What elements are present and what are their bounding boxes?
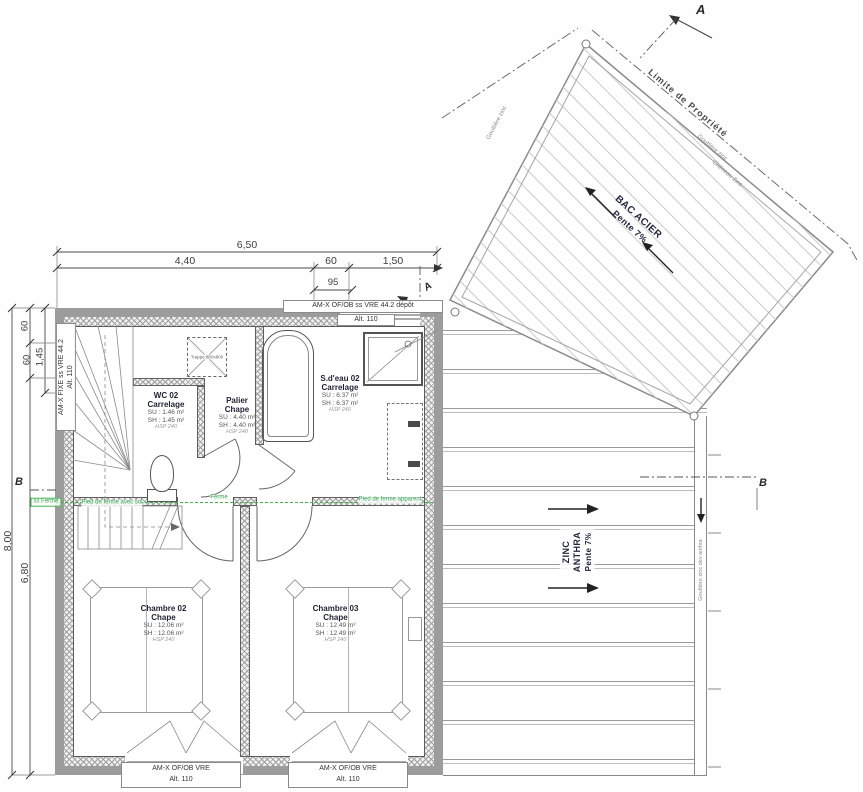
staircase — [73, 326, 182, 549]
window-bottom1-label: AM-X OF/OB VRE Alt. 110 — [121, 762, 241, 788]
zinc-slope: Pente 7% — [583, 532, 593, 572]
window-top-label: AM-X OF/OB ss VRE 44.2 dépôt — [283, 300, 443, 313]
ferme-label-mid2: Ferme — [210, 495, 227, 502]
room-name: Chambre 03 — [293, 604, 378, 613]
room-finish: Chape — [121, 613, 206, 622]
dim-arrow-150 — [434, 264, 443, 272]
window-b1-l1: AM-X OF/OB VRE — [122, 763, 240, 774]
room-su: SU : 12.49 m² — [293, 622, 378, 629]
section-b-right: B — [759, 477, 767, 489]
room-sh: SH : 12.06 m² — [121, 630, 206, 637]
room-finish: Carrelage — [126, 400, 206, 409]
room-su: SU : 6.37 m² — [299, 392, 381, 399]
room-su: SU : 4.40 m² — [197, 414, 277, 421]
room-palier: Palier Chape SU : 4.40 m² SH : 4.40 m² H… — [197, 396, 277, 436]
zinc-name-2: ANTHRA — [572, 532, 583, 572]
zinc-name-1: ZINC — [561, 532, 572, 572]
section-a-top: A — [696, 2, 705, 17]
room-chambre02: Chambre 02 Chape SU : 12.06 m² SH : 12.0… — [121, 604, 206, 644]
room-name: Chambre 02 — [121, 604, 206, 613]
room-hsp: HSP 240 — [126, 424, 206, 430]
window-left-l1: AM-X FIXE ss VRE 44.2 — [57, 324, 66, 430]
door-swings — [178, 439, 312, 561]
room-name: S.d'eau 02 — [299, 374, 381, 383]
room-sh: SH : 1.45 m² — [126, 417, 206, 424]
window-top-alt: Alt. 110 — [337, 314, 395, 326]
zinc-gutter-label: Gouttière zinc dev anthra — [698, 539, 704, 600]
zinc-label: ZINC ANTHRA Pente 7% — [560, 529, 595, 575]
room-name: Palier — [197, 396, 277, 405]
room-finish: Chape — [293, 613, 378, 622]
room-hsp: HSP 240 — [121, 637, 206, 643]
window-left-label: AM-X FIXE ss VRE 44.2 Alt. 110 — [56, 323, 76, 431]
room-name: WC 02 — [126, 391, 206, 400]
floor-plan-canvas: 6,50 4,40 60 1,50 95 8,00 60 60 1,45 6,8… — [0, 0, 863, 792]
room-su: SU : 12.06 m² — [121, 622, 206, 629]
room-finish: Carrelage — [299, 383, 381, 392]
ferme-label-right: Pied de ferme apparent — [359, 497, 422, 504]
ferme-label-mid1: Pied de ferme avec sol — [81, 500, 142, 507]
room-hsp: HSP 240 — [293, 637, 378, 643]
room-hsp: HSP 240 — [299, 407, 381, 413]
ferme-label-left: ss Ferme — [30, 498, 61, 507]
room-hsp: HSP 240 — [197, 429, 277, 435]
room-sh: SH : 6.37 m² — [299, 400, 381, 407]
window-left-l2: Alt. 110 — [66, 324, 75, 430]
room-finish: Chape — [197, 405, 277, 414]
room-chambre03: Chambre 03 Chape SU : 12.49 m² SH : 12.4… — [293, 604, 378, 644]
section-b-left: B — [15, 476, 23, 488]
room-sdeau02: S.d'eau 02 Carrelage SU : 6.37 m² SH : 6… — [299, 374, 381, 414]
trappe-label: Trappe 800x800 — [191, 355, 224, 360]
window-bottom2-label: AM-X OF/OB VRE Alt. 110 — [288, 762, 408, 788]
room-sh: SH : 4.40 m² — [197, 422, 277, 429]
window-b2-l2: Alt. 110 — [289, 774, 407, 785]
room-su: SU : 1.46 m² — [126, 409, 206, 416]
room-wc02: WC 02 Carrelage SU : 1.46 m² SH : 1.45 m… — [126, 391, 206, 431]
window-b2-l1: AM-X OF/OB VRE — [289, 763, 407, 774]
section-marks — [30, 15, 757, 510]
room-sh: SH : 12.49 m² — [293, 630, 378, 637]
window-b1-l2: Alt. 110 — [122, 774, 240, 785]
